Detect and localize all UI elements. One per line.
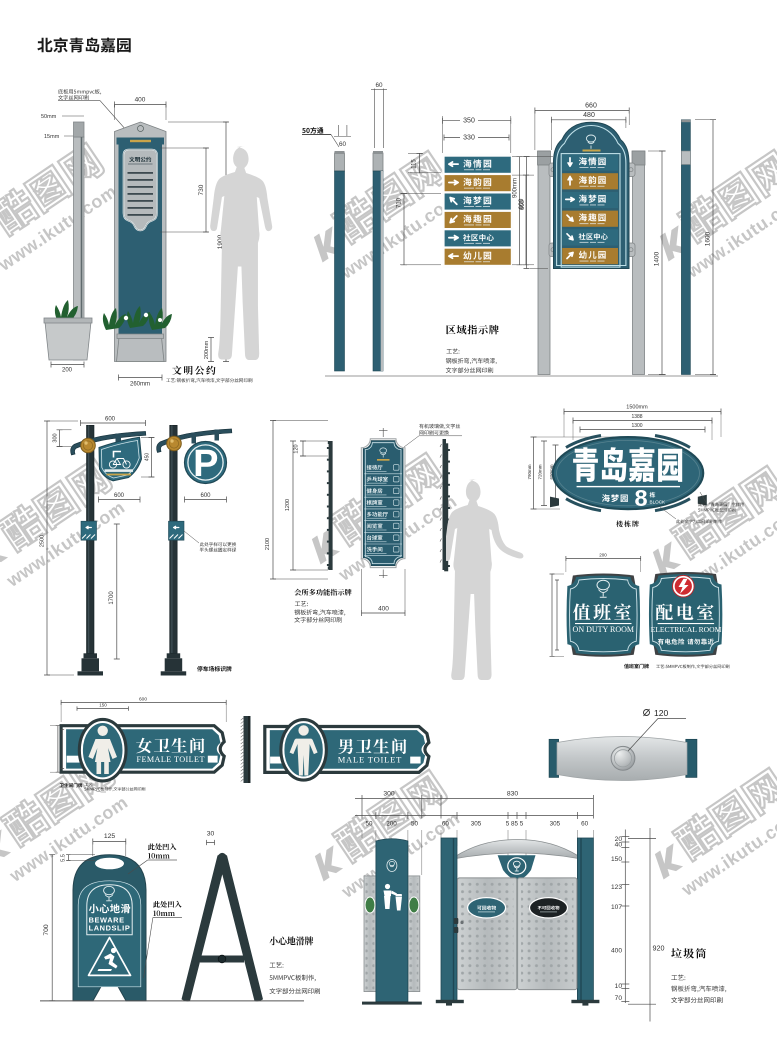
svg-text:305: 305	[550, 821, 561, 828]
svg-text:710: 710	[397, 197, 403, 208]
svg-text:1500mm: 1500mm	[626, 405, 648, 411]
svg-text:1700: 1700	[109, 591, 115, 605]
svg-text:FEMALE TOILET: FEMALE TOILET	[137, 755, 205, 764]
svg-text:400: 400	[135, 97, 146, 104]
svg-text:200: 200	[62, 368, 73, 374]
svg-text:600: 600	[518, 198, 525, 209]
svg-text:BLOCK: BLOCK	[650, 500, 667, 505]
svg-text:115: 115	[412, 159, 418, 169]
svg-text:10: 10	[615, 983, 623, 990]
svg-text:125: 125	[104, 833, 116, 840]
svg-text:600: 600	[105, 416, 116, 422]
svg-text:123: 123	[611, 884, 622, 891]
svg-text:730: 730	[198, 184, 205, 195]
svg-text:920: 920	[653, 944, 665, 953]
svg-text:900mm: 900mm	[513, 178, 519, 198]
svg-text:50: 50	[365, 821, 373, 828]
svg-text:40: 40	[615, 841, 623, 848]
svg-text:600: 600	[139, 696, 147, 702]
svg-text:8: 8	[635, 485, 648, 511]
svg-text:5 85 5: 5 85 5	[506, 821, 524, 828]
svg-text:790mm: 790mm	[527, 464, 532, 479]
svg-text:ON DUTY ROOM: ON DUTY ROOM	[573, 625, 634, 634]
svg-text:MALE TOILET: MALE TOILET	[338, 755, 402, 765]
svg-text:30: 30	[207, 831, 215, 838]
svg-text:200: 200	[599, 553, 607, 558]
svg-text:450: 450	[145, 453, 151, 462]
svg-text:107: 107	[611, 904, 622, 911]
svg-text:660: 660	[585, 103, 597, 110]
svg-text:15mm: 15mm	[44, 134, 60, 140]
svg-text:60: 60	[581, 821, 589, 828]
svg-text:1400: 1400	[654, 251, 661, 266]
svg-text:400: 400	[378, 606, 389, 613]
svg-text:50mm: 50mm	[41, 114, 57, 120]
svg-text:200: 200	[386, 821, 397, 828]
svg-text:830: 830	[507, 791, 519, 798]
svg-text:2100: 2100	[265, 538, 271, 550]
svg-text:60: 60	[375, 82, 383, 89]
svg-text:720mm: 720mm	[538, 464, 543, 479]
svg-text:120: 120	[654, 708, 668, 718]
svg-text:70: 70	[615, 995, 623, 1002]
svg-text:600: 600	[114, 493, 125, 499]
svg-text:60: 60	[339, 141, 347, 148]
svg-text:2500: 2500	[40, 535, 46, 547]
svg-text:P: P	[193, 443, 218, 485]
svg-text:200mm: 200mm	[204, 340, 210, 359]
svg-text:1600: 1600	[705, 231, 712, 246]
svg-text:1200: 1200	[285, 499, 291, 511]
svg-text:50: 50	[411, 821, 419, 828]
svg-text:350: 350	[463, 118, 475, 125]
svg-text:305: 305	[471, 821, 482, 828]
svg-text:LANDSLIP: LANDSLIP	[89, 924, 131, 933]
svg-text:480: 480	[583, 112, 595, 119]
svg-text:60: 60	[442, 821, 450, 828]
svg-text:400: 400	[611, 947, 622, 954]
svg-text:300: 300	[383, 791, 395, 798]
svg-text:5.5: 5.5	[61, 854, 67, 862]
svg-text:330: 330	[463, 135, 475, 142]
svg-text:300: 300	[53, 433, 59, 442]
svg-text:600: 600	[200, 493, 211, 499]
svg-text:260mm: 260mm	[130, 382, 150, 388]
svg-text:120: 120	[294, 444, 300, 453]
svg-text:ELECTRICAL ROOM: ELECTRICAL ROOM	[651, 625, 722, 634]
svg-text:1388: 1388	[631, 414, 642, 420]
svg-text:700: 700	[43, 924, 50, 936]
svg-text:150: 150	[611, 856, 622, 863]
svg-text:1300: 1300	[631, 423, 642, 429]
svg-text:150: 150	[99, 703, 107, 708]
